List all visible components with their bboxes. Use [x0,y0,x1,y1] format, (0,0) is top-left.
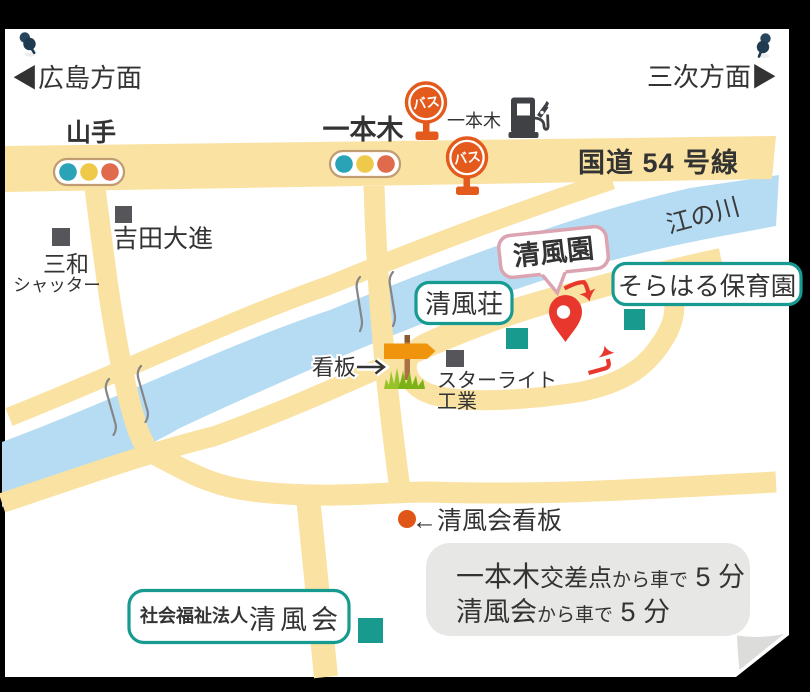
svg-text:工業: 工業 [437,390,477,413]
svg-text:そらはる保育園: そらはる保育園 [618,273,797,301]
svg-text:山手: 山手 [66,119,116,147]
svg-text:一本木: 一本木 [323,115,404,145]
svg-text:◀広島方面: ◀広島方面 [12,63,142,93]
svg-text:三和: 三和 [43,251,89,277]
svg-text:吉田大進: 吉田大進 [113,225,213,253]
svg-text:一本木交差点から車で 5 分: 一本木交差点から車で 5 分 [456,561,745,592]
svg-text:社会福祉法人: 社会福祉法人 [140,605,249,626]
svg-text:三次方面▶: 三次方面▶ [647,62,777,92]
svg-text:清風荘: 清風荘 [425,289,503,319]
svg-text:国道 54 号線: 国道 54 号線 [578,147,739,178]
svg-text:スターライト: スターライト [437,369,557,392]
svg-text:←清風会看板: ←清風会看板 [412,507,562,535]
svg-text:一本木: 一本木 [447,111,501,131]
svg-text:看板: 看板 [312,355,356,380]
svg-text:清風会: 清風会 [249,605,342,635]
svg-text:シャッター: シャッター [13,275,101,295]
